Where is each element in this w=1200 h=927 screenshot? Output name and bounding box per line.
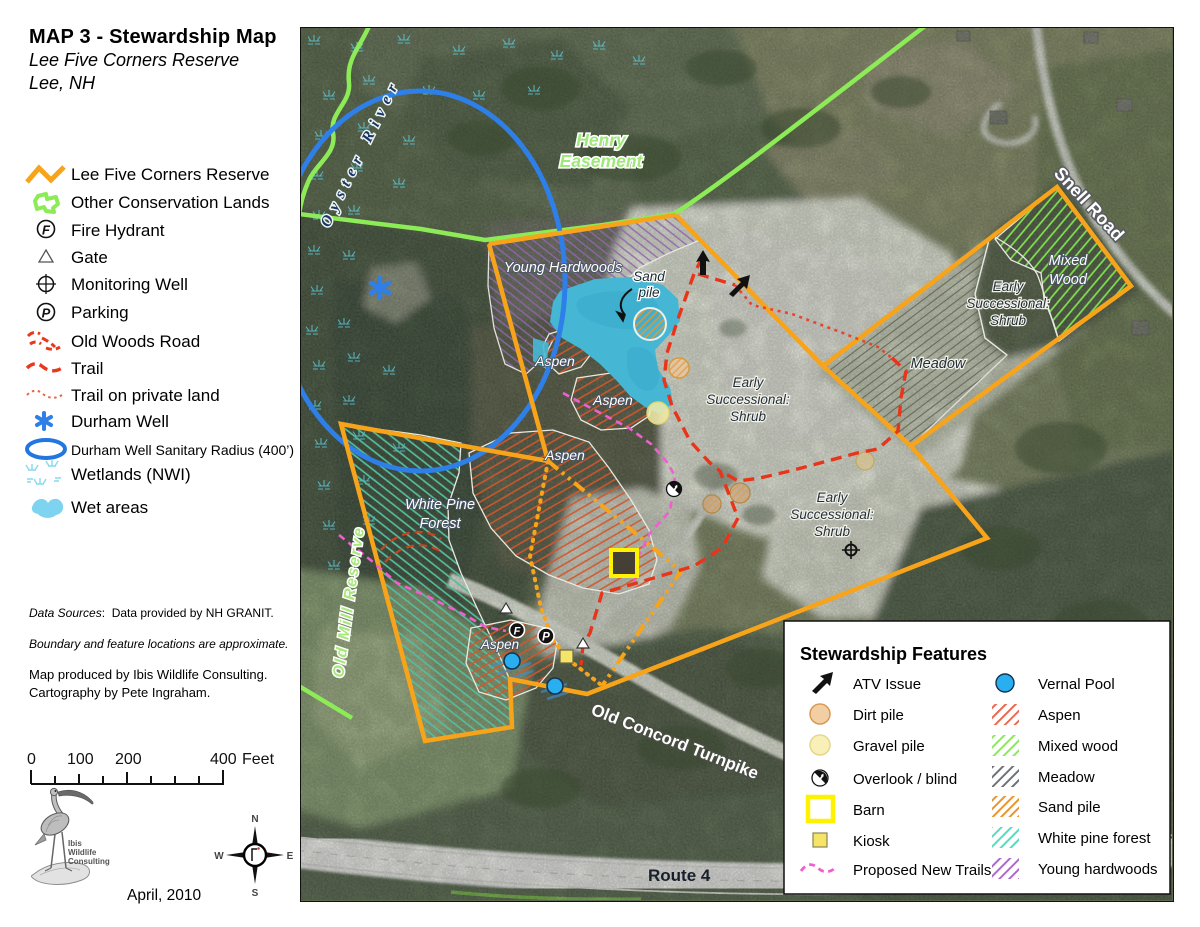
svg-text:Easement: Easement [560, 151, 644, 171]
svg-text:Early: Early [817, 490, 849, 505]
svg-text:Shrub: Shrub [990, 313, 1027, 328]
svg-text:Vernal Pool: Vernal Pool [1038, 676, 1115, 693]
svg-text:W: W [214, 851, 224, 862]
svg-text:Aspen: Aspen [544, 447, 585, 463]
svg-text:0: 0 [27, 751, 36, 768]
svg-text:N: N [251, 814, 258, 825]
svg-text:100: 100 [67, 751, 94, 768]
svg-text:pile: pile [637, 285, 659, 300]
svg-text:F: F [42, 223, 51, 238]
svg-text:Young hardwoods: Young hardwoods [1038, 861, 1158, 878]
svg-text:400: 400 [210, 751, 237, 768]
svg-text:Successional:: Successional: [790, 507, 874, 522]
svg-text:P: P [542, 632, 550, 644]
svg-text:Overlook / blind: Overlook / blind [853, 771, 957, 788]
svg-text:S: S [252, 888, 259, 899]
svg-text:E: E [287, 851, 294, 862]
svg-text:Henry: Henry [576, 130, 627, 150]
svg-text:Stewardship Features: Stewardship Features [800, 644, 987, 664]
svg-text:Young Hardwoods: Young Hardwoods [504, 260, 623, 276]
svg-text:Barn: Barn [853, 802, 885, 819]
svg-text:White Pine: White Pine [405, 497, 475, 513]
svg-text:Consulting: Consulting [68, 857, 110, 866]
svg-text:Aspen: Aspen [480, 637, 519, 652]
svg-text:Wood: Wood [1049, 272, 1088, 288]
svg-text:Proposed New Trails: Proposed New Trails [853, 862, 991, 879]
svg-text:Sand pile: Sand pile [1038, 799, 1101, 816]
svg-text:White pine forest: White pine forest [1038, 830, 1151, 847]
svg-text:F: F [514, 626, 521, 638]
svg-text:Mixed: Mixed [1049, 253, 1089, 269]
svg-text:Early: Early [993, 279, 1025, 294]
svg-text:Sand: Sand [633, 269, 665, 284]
svg-text:Ibis: Ibis [68, 839, 82, 848]
svg-text:Gravel pile: Gravel pile [853, 738, 925, 755]
svg-text:Shrub: Shrub [814, 524, 851, 539]
svg-text:Feet: Feet [242, 751, 275, 768]
svg-text:Kiosk: Kiosk [853, 833, 890, 850]
svg-text:200: 200 [115, 751, 142, 768]
svg-text:Route 4: Route 4 [648, 866, 711, 885]
svg-text:Aspen: Aspen [592, 392, 633, 408]
svg-text:Forest: Forest [419, 516, 461, 532]
svg-text:Meadow: Meadow [911, 356, 967, 372]
svg-text:Successional:: Successional: [706, 392, 790, 407]
svg-text:Wildlife: Wildlife [68, 848, 97, 857]
svg-text:P: P [42, 306, 51, 321]
svg-text:Early: Early [733, 375, 765, 390]
svg-text:Mixed wood: Mixed wood [1038, 738, 1118, 755]
svg-text:ATV Issue: ATV Issue [853, 676, 921, 693]
svg-text:Aspen: Aspen [1038, 707, 1081, 724]
svg-text:Dirt pile: Dirt pile [853, 707, 904, 724]
svg-text:Aspen: Aspen [534, 353, 575, 369]
svg-text:Shrub: Shrub [730, 409, 767, 424]
svg-text:Meadow: Meadow [1038, 769, 1095, 786]
svg-text:Successional:: Successional: [966, 296, 1050, 311]
